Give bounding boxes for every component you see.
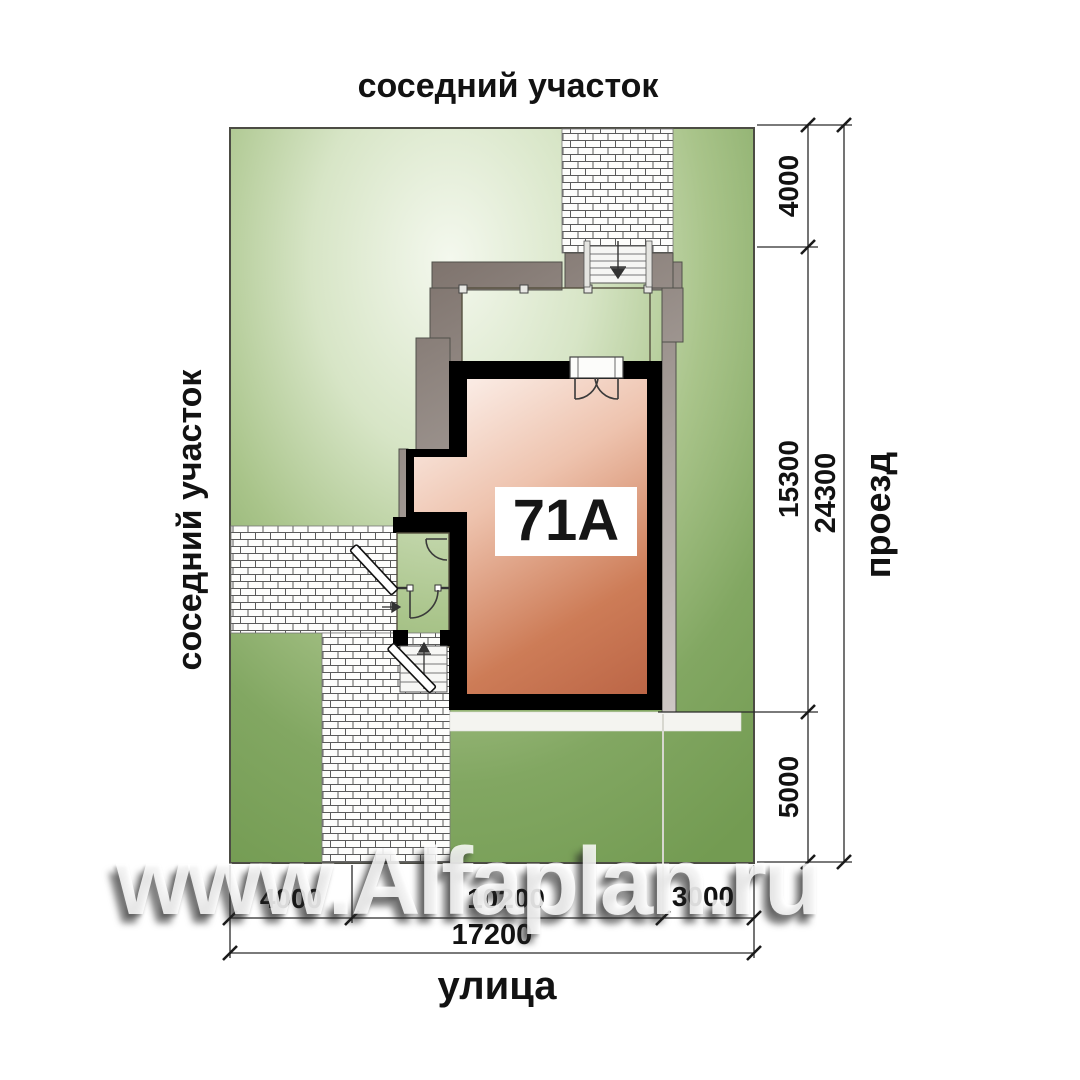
dimension-lines-bottom: 4000 10200 3000 17200 — [223, 865, 761, 960]
dim-bottom-total: 17200 — [452, 919, 533, 951]
stair-rail-right — [646, 241, 652, 287]
dim-right-total: 24300 — [810, 453, 842, 534]
label-street-bottom: улица — [437, 964, 557, 1008]
dim-right-seg1: 4000 — [773, 155, 804, 217]
house-number-label: 71А — [513, 488, 619, 553]
entry-stairs-top — [584, 241, 652, 287]
vestibule-wall-stub-right — [440, 630, 450, 646]
site-plan-page: 71А — [0, 0, 1080, 1080]
label-road-right: проезд — [857, 452, 898, 579]
site-plan-drawing: 71А — [0, 0, 1080, 1080]
dim-right-seg2: 15300 — [773, 440, 804, 518]
label-neighbor-top: соседний участок — [358, 67, 660, 105]
dim-right-seg3: 5000 — [773, 756, 804, 818]
driveway-brick-path — [562, 129, 673, 253]
label-neighbor-left: соседний участок — [171, 369, 209, 671]
vestibule-north-wall — [393, 517, 449, 533]
garden-path-horizontal — [231, 526, 397, 633]
dim-bottom-seg1: 4000 — [260, 883, 322, 914]
walkway-band-south — [450, 712, 741, 731]
dim-bottom-seg3: 3000 — [672, 881, 734, 912]
stair-rail-left — [584, 241, 590, 287]
dim-bottom-seg2: 10200 — [467, 883, 545, 914]
